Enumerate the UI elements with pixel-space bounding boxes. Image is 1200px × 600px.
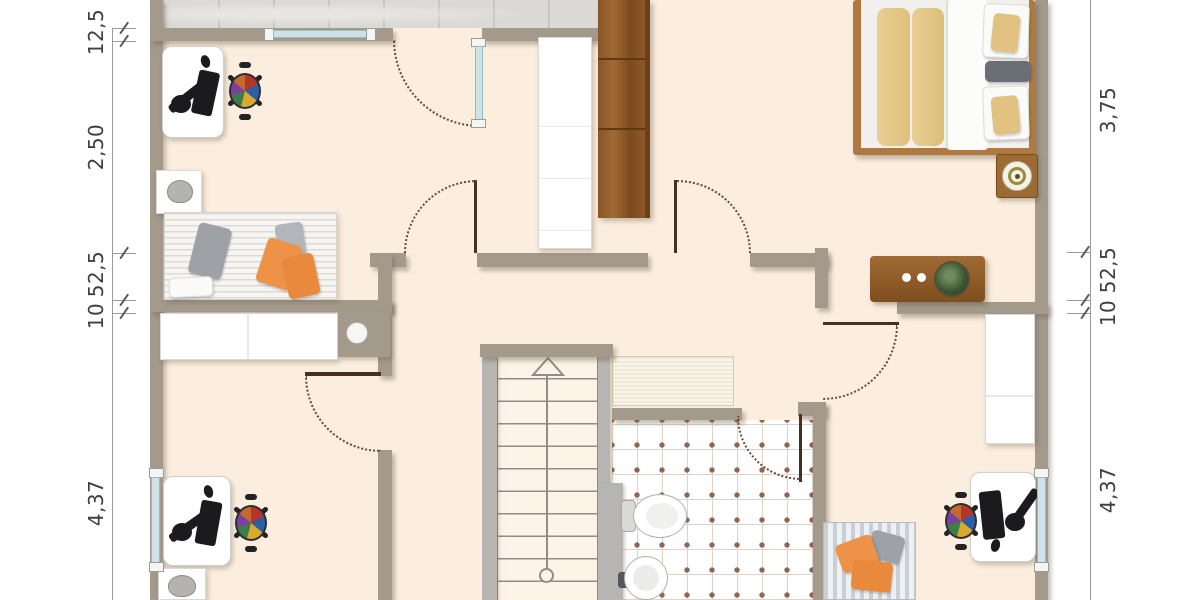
chair-seat: [235, 505, 267, 541]
stairwell-wall-left: [482, 357, 497, 600]
wardrobe-room3: [160, 313, 338, 360]
terrace-door-glass-leaf: [474, 38, 484, 128]
bathroom-north-wall: [612, 408, 742, 420]
dim-tick: [1067, 252, 1091, 253]
table-object: [167, 180, 193, 203]
dimension-label-right-0: 3,75: [1096, 87, 1120, 134]
lamp-center: [1015, 174, 1020, 179]
door-frame-cap: [471, 119, 486, 128]
dimension-label-left-2: 52,5: [84, 251, 108, 298]
window-cap: [149, 562, 164, 572]
sink-basin-inner: [633, 565, 659, 591]
shelf-line: [539, 230, 591, 231]
chair-seat: [945, 503, 977, 539]
bed-pillow-small: [990, 95, 1020, 135]
side-table-room3: [158, 568, 206, 600]
wood-seam: [598, 128, 650, 130]
chair-armrest: [245, 494, 257, 500]
dimension-label-right-3: 4,37: [1096, 467, 1120, 514]
keyboard-icon: [191, 69, 221, 116]
desk-room1: [162, 46, 224, 138]
floor-plan: 12,5 2,50 52,5 10 4,37 3,75 52,5 10 4,37: [0, 0, 1200, 600]
gray-pillow: [187, 222, 233, 281]
side-table-room1: [156, 170, 202, 214]
stairs-up-arrow-icon: [530, 356, 566, 378]
dressing-wall-west: [815, 248, 828, 308]
dim-tick: [1067, 313, 1091, 314]
dimension-label-right-2: 10: [1096, 300, 1120, 326]
hall-wardrobe-white: [538, 37, 592, 249]
striped-rug: [823, 522, 916, 600]
monitor-stand: [172, 523, 192, 541]
bed-pillow-small: [990, 13, 1021, 54]
room1-door-leaf: [474, 180, 477, 253]
monitor-stand: [1005, 513, 1025, 531]
room3-east-wall-bottom: [378, 450, 392, 600]
chair-armrest: [245, 546, 257, 552]
sink-basin: [624, 556, 668, 600]
wood-seam: [598, 58, 650, 60]
roof-terrace-floor: [163, 0, 598, 28]
orange-pillow: [281, 252, 321, 300]
dimension-label-left-0: 12,5: [84, 9, 108, 56]
bed-duvet: [946, 0, 988, 150]
office-chair-bottom-right: [938, 490, 984, 552]
office-chair-room1: [222, 60, 268, 122]
room1-south-wall: [150, 300, 392, 312]
window-right: [1033, 468, 1050, 572]
sideboard-knob: [917, 273, 926, 282]
dimension-label-right-1: 52,5: [1096, 247, 1120, 294]
desk-room3: [163, 476, 231, 566]
window-glass: [1037, 477, 1046, 563]
toilet-bowl-inner: [646, 503, 678, 529]
mouse-icon: [202, 484, 215, 499]
round-basin-icon: [346, 322, 368, 344]
toilet-bowl: [633, 494, 687, 538]
table-object: [168, 575, 196, 597]
stairwell-top-wall: [480, 344, 613, 357]
mouse-icon: [989, 538, 1001, 553]
window-cap: [366, 28, 376, 41]
shelf-line: [539, 126, 591, 127]
wood-edge: [645, 0, 650, 218]
window-glass: [273, 30, 367, 38]
chair-armrest: [239, 114, 251, 120]
white-pillow: [169, 276, 214, 298]
stairwell-wall-right: [598, 357, 610, 483]
mouse-icon: [199, 54, 212, 69]
dimension-label-left-3: 10: [84, 303, 108, 329]
dimension-label-left-1: 2,50: [84, 124, 108, 171]
bed-blanket: [877, 8, 910, 146]
bathroom-bench: [612, 356, 734, 406]
orange-pillow: [851, 559, 894, 593]
hall-wall-north-b: [477, 253, 648, 267]
chair-seat: [229, 73, 261, 109]
stair-center-line: [546, 374, 548, 576]
window-cap: [1034, 562, 1049, 572]
keyboard-icon: [194, 500, 222, 547]
sideboard-knob: [902, 273, 911, 282]
room3-door-leaf: [305, 372, 381, 376]
chair-armrest: [955, 544, 967, 550]
potted-plant-icon: [934, 261, 970, 297]
chair-armrest: [239, 62, 251, 68]
shelf-line: [986, 395, 1034, 397]
bathroom-door-leaf: [799, 414, 802, 482]
dimension-label-left-4: 4,37: [84, 480, 108, 527]
dressing-wardrobe: [985, 314, 1035, 444]
bed-blanket: [912, 8, 944, 146]
stair-start-circle: [539, 568, 554, 583]
daybed-room1: [164, 212, 337, 300]
nightstand: [996, 154, 1038, 198]
shelf-divider: [247, 314, 249, 359]
chair-armrest: [955, 492, 967, 498]
window-left: [148, 468, 165, 572]
bedroom-door-leaf: [674, 180, 677, 253]
hall-wardrobe-wood: [598, 0, 650, 218]
sideboard: [870, 256, 985, 302]
monitor-stand: [171, 95, 191, 113]
corner-block: [338, 312, 390, 357]
window-glass: [151, 477, 160, 563]
dim-tick: [1067, 300, 1091, 301]
shelf-line: [539, 178, 591, 179]
double-bed: [853, 0, 1035, 155]
office-chair-room3: [228, 492, 274, 554]
bottom-right-room-door-leaf: [823, 322, 899, 325]
dressing-wall-south: [897, 302, 1048, 314]
window-top: [264, 27, 376, 42]
door-glass: [475, 46, 483, 120]
bed-runner: [985, 61, 1031, 82]
